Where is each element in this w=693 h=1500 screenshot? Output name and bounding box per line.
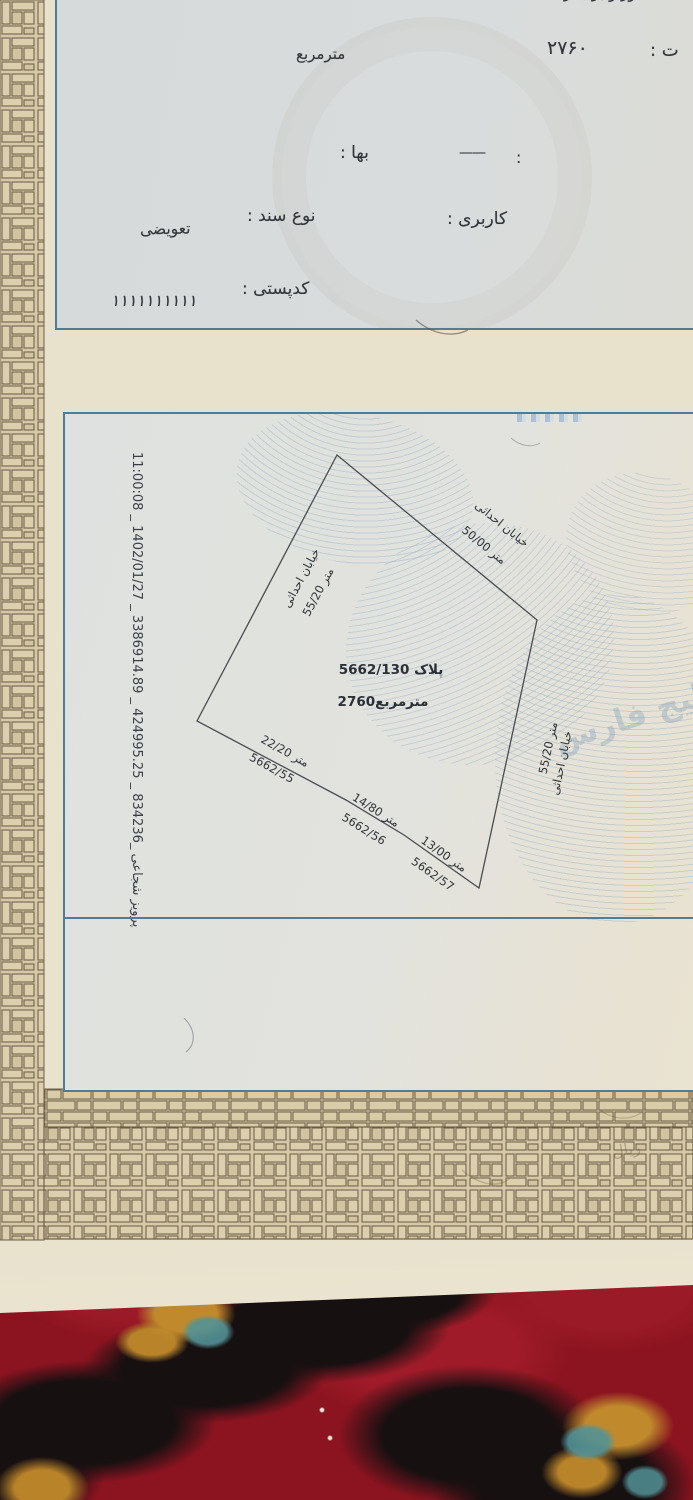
doc-type-label: نوع سند :: [247, 206, 316, 226]
deed-photo: ور و بری از : ـعه ت : ۲۷۶۰ مترمربع : —— …: [0, 0, 693, 1500]
plot-area-label: 2760مترمربع: [338, 694, 429, 710]
parcel-outline-svg: [65, 414, 693, 1090]
price-label: بها :: [340, 143, 369, 163]
area-value: ۲۷۶۰: [547, 37, 588, 59]
dash-row-colon: :: [516, 148, 521, 167]
area-unit: مترمربع: [296, 45, 345, 63]
map-panel: خلیج فارس 11:00:08 _ 1402/01/27 _ 338691…: [63, 412, 693, 1092]
ornamental-border-bottom-weave: [44, 1127, 693, 1239]
plot-number-label: پلاک 5662/130: [339, 662, 444, 678]
postal-code-value: ۱۱۱۱۱۱۱۱۱۱: [110, 291, 199, 310]
emblem-watermark: [272, 17, 592, 330]
dash-row-value: ——: [459, 145, 485, 161]
usage-label: کاربری :: [447, 209, 507, 229]
postal-code-label: کدپستی :: [242, 279, 309, 299]
ornamental-border-bottom-bricks: [44, 1089, 693, 1127]
doc-type-value: تعویضی: [140, 220, 191, 239]
deed-paper: ور و بری از : ـعه ت : ۲۷۶۰ مترمربع : —— …: [0, 0, 693, 1500]
map-panel-divider: [65, 917, 693, 919]
area-label-fragment: ت :: [650, 40, 679, 61]
header-top-partial: ور و بری از :: [554, 0, 635, 2]
ornamental-border-left: [0, 0, 44, 1240]
survey-stamp-vertical: 11:00:08 _ 1402/01/27 _ 3386914.89 _ 424…: [114, 452, 144, 888]
header-panel: ور و بری از : ـعه ت : ۲۷۶۰ مترمربع : —— …: [55, 0, 693, 330]
